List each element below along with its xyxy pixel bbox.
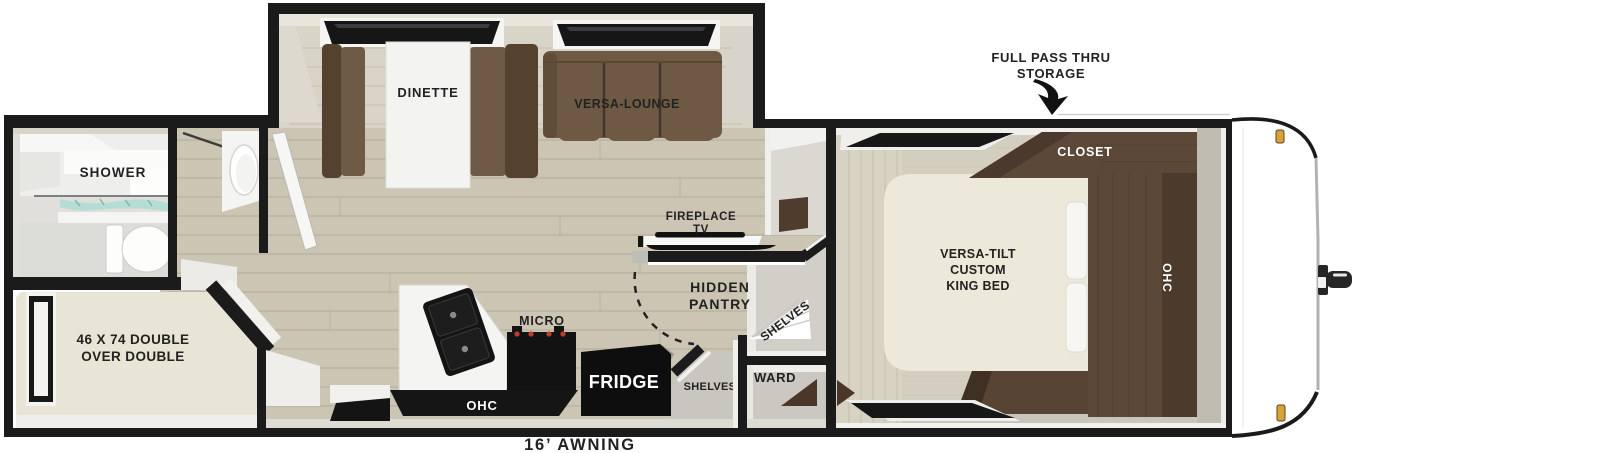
svg-text:STORAGE: STORAGE <box>1017 66 1085 81</box>
svg-text:16’ AWNING: 16’ AWNING <box>524 436 636 453</box>
svg-text:FULL PASS THRU: FULL PASS THRU <box>991 50 1110 65</box>
svg-text:HIDDEN: HIDDEN <box>690 279 750 295</box>
svg-text:CUSTOM: CUSTOM <box>950 263 1006 277</box>
svg-text:WARD: WARD <box>754 370 796 385</box>
svg-text:KING BED: KING BED <box>946 279 1010 293</box>
svg-text:OHC: OHC <box>466 398 497 413</box>
svg-text:46 X 74 DOUBLE: 46 X 74 DOUBLE <box>77 332 190 347</box>
svg-text:OHC: OHC <box>1160 263 1174 293</box>
svg-text:CLOSET: CLOSET <box>1057 145 1113 159</box>
svg-text:OVER DOUBLE: OVER DOUBLE <box>81 349 184 364</box>
svg-text:VERSA-TILT: VERSA-TILT <box>940 247 1016 261</box>
svg-text:PANTRY: PANTRY <box>689 296 751 312</box>
svg-text:DINETTE: DINETTE <box>397 85 458 100</box>
svg-text:VERSA-LOUNGE: VERSA-LOUNGE <box>574 97 680 111</box>
svg-text:FRIDGE: FRIDGE <box>589 372 659 392</box>
svg-text:MICRO: MICRO <box>519 314 565 328</box>
svg-text:FIREPLACE: FIREPLACE <box>666 211 737 223</box>
svg-text:SHOWER: SHOWER <box>80 165 147 180</box>
svg-text:TV: TV <box>693 224 709 236</box>
svg-text:SHELVES: SHELVES <box>684 381 737 393</box>
